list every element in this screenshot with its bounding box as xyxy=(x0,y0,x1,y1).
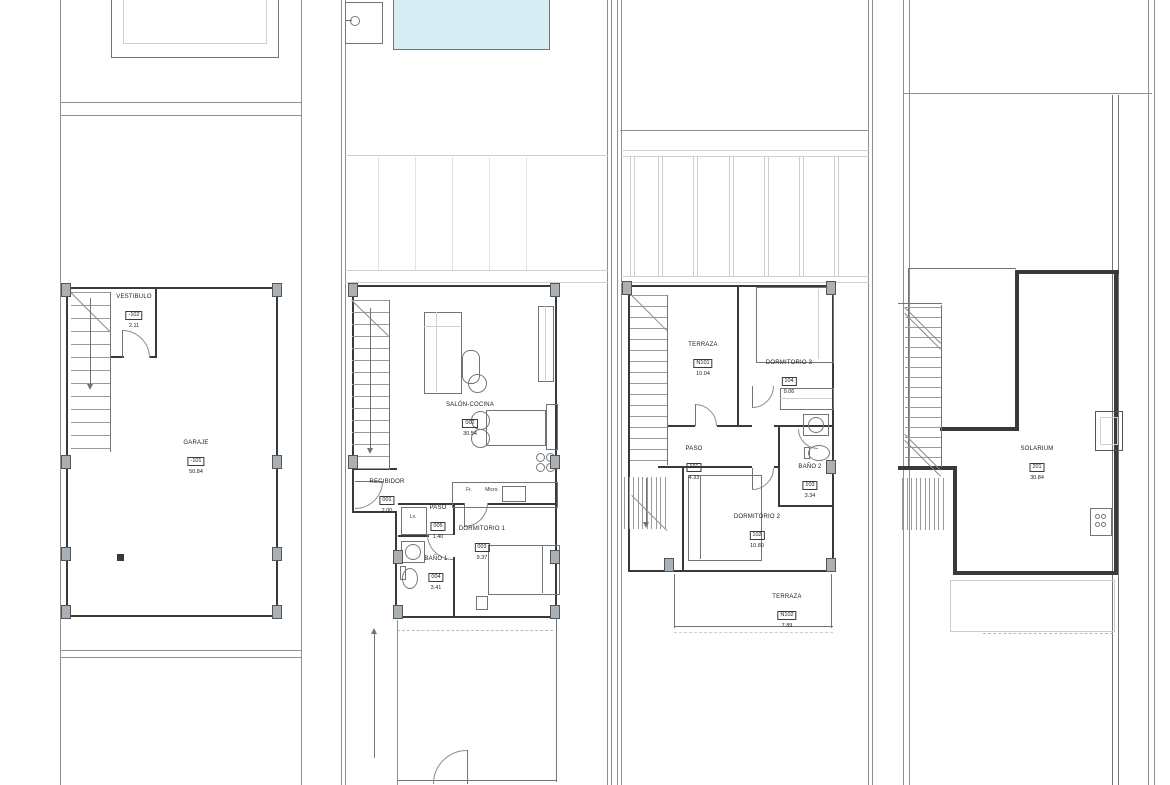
room-area: 3.41 xyxy=(424,585,447,592)
wall xyxy=(66,287,278,289)
room-name: GARAJE xyxy=(183,440,208,448)
lower-roof-outline xyxy=(950,580,1115,632)
room-name: TERRAZA xyxy=(688,342,717,350)
stair-tread xyxy=(905,357,941,358)
pergola-slat xyxy=(634,157,635,277)
room-code: 004 xyxy=(428,573,443,583)
direction-arrow-head xyxy=(367,448,373,454)
room-name: RECIBIDOR xyxy=(369,479,404,487)
plot-line xyxy=(607,0,608,785)
hatch-line xyxy=(651,477,652,529)
toilet-tank xyxy=(804,447,810,459)
toilet xyxy=(808,445,830,461)
direction-arrow-head xyxy=(643,522,649,528)
plot-line xyxy=(611,0,612,785)
deck-line xyxy=(489,157,490,270)
plot-line xyxy=(301,0,302,785)
room-area: 9.37 xyxy=(459,555,505,562)
plot-line xyxy=(341,0,342,785)
room-code: 102 xyxy=(749,531,764,541)
wall xyxy=(1015,270,1019,430)
column xyxy=(61,547,71,561)
wall xyxy=(352,285,557,287)
wall xyxy=(155,287,157,358)
stair-tread xyxy=(630,372,667,373)
sink xyxy=(808,417,824,433)
plot-line xyxy=(868,0,869,785)
terrace-wall xyxy=(831,574,832,628)
room-name: TERRAZA xyxy=(772,594,801,602)
room-name: DORMITORIO 3 xyxy=(766,360,812,368)
room-area: 3.34 xyxy=(798,493,821,500)
direction-arrow xyxy=(90,298,91,384)
column xyxy=(826,558,836,572)
plot-line xyxy=(617,0,618,785)
room-code: -101 xyxy=(187,457,204,467)
stair-tread xyxy=(630,416,667,417)
stair-tread xyxy=(630,405,667,406)
stair-tread xyxy=(905,377,941,378)
outdoor-shower-icon xyxy=(350,16,360,26)
outdoor-shower-icon xyxy=(346,20,352,21)
wall xyxy=(658,466,752,468)
wall xyxy=(953,571,1118,575)
room-name: DORMITORIO 2 xyxy=(734,514,780,522)
room-name: SALÓN-COCINA xyxy=(446,402,494,410)
plot-line xyxy=(872,0,873,785)
chimney-box-inner xyxy=(1100,417,1118,445)
direction-arrow xyxy=(374,634,375,758)
stair-wall xyxy=(941,305,942,467)
stair-tread xyxy=(71,422,110,423)
room-code: -102 xyxy=(125,311,142,321)
deck-line xyxy=(452,157,453,270)
column xyxy=(393,550,403,564)
floor-drain xyxy=(117,554,124,561)
room-label: BAÑO 10043.41 xyxy=(424,556,447,592)
wall xyxy=(668,425,695,427)
room-label: DORMITORIO 10039.37 xyxy=(459,526,505,562)
pergola-slat xyxy=(697,157,698,277)
appliance-annotation: Lv. xyxy=(410,514,416,520)
wall xyxy=(778,505,834,507)
wall xyxy=(395,616,557,618)
stair-tread xyxy=(630,438,667,439)
pergola-slat xyxy=(630,157,631,277)
direction-arrow xyxy=(646,478,647,522)
band-line xyxy=(621,150,869,151)
room-label: TERRAZAN10110.04 xyxy=(688,342,717,378)
pergola-slat xyxy=(799,157,800,277)
stair-tread xyxy=(905,307,941,308)
door-arc xyxy=(433,750,467,784)
wall xyxy=(66,615,278,617)
hatch-line xyxy=(656,477,657,529)
column xyxy=(393,605,403,619)
room-area: 10.04 xyxy=(688,371,717,378)
stair-tread xyxy=(71,448,110,449)
pergola-slat xyxy=(693,157,694,277)
plot-line xyxy=(909,0,910,785)
sofa-line xyxy=(424,326,460,327)
pergola-slat xyxy=(768,157,769,277)
pergola-slat xyxy=(658,157,659,277)
column xyxy=(550,283,560,297)
column xyxy=(550,455,560,469)
room-area: 7.89 xyxy=(772,623,801,630)
stair-tread xyxy=(630,449,667,450)
roof-edge xyxy=(898,303,942,304)
bed xyxy=(756,287,834,363)
column xyxy=(348,283,358,297)
room-code: 003 xyxy=(474,543,489,553)
stair-tread xyxy=(905,437,941,438)
pergola-slat xyxy=(733,157,734,277)
plot-line xyxy=(345,0,346,785)
stair-tread xyxy=(71,435,110,436)
stair-tread xyxy=(630,306,667,307)
pool xyxy=(393,0,550,50)
room-code: 001 xyxy=(379,496,394,506)
hob-burner xyxy=(536,463,545,472)
tv-unit xyxy=(538,306,554,382)
stair-tread xyxy=(630,361,667,362)
stair-tread xyxy=(630,427,667,428)
room-area: 2.00 xyxy=(369,508,404,515)
hatch-line xyxy=(916,478,917,530)
hatch-line xyxy=(660,477,661,529)
closet-line xyxy=(780,398,832,399)
stair-tread xyxy=(905,387,941,388)
band-line xyxy=(60,115,302,116)
ac-dot xyxy=(1095,514,1100,519)
dining-table xyxy=(486,410,546,446)
appliance-annotation: Micro. xyxy=(485,487,499,493)
hatch-line xyxy=(920,478,921,530)
pergola-slat xyxy=(838,157,839,277)
wall xyxy=(352,285,354,513)
hatch-line xyxy=(934,478,935,530)
stair-tread xyxy=(630,394,667,395)
room-label: RECIBIDOR0012.00 xyxy=(369,479,404,515)
room-area: 1.40 xyxy=(429,534,446,541)
kitchen-sink xyxy=(502,486,526,502)
stair-tread xyxy=(71,396,110,397)
room-area: 30.84 xyxy=(1021,475,1054,482)
column xyxy=(622,281,632,295)
sofa xyxy=(424,312,462,394)
band-line xyxy=(345,282,608,283)
floor-plans-canvas: VESTIBULO-1022.11GARAJE-10150.84SALÓN-CO… xyxy=(0,0,1170,785)
plot-line xyxy=(60,0,61,785)
column xyxy=(272,283,282,297)
stair-tread xyxy=(630,328,667,329)
room-label: SOLARIUM20130.84 xyxy=(1021,446,1054,482)
plot-line xyxy=(621,0,622,785)
band-line xyxy=(903,93,1152,94)
column xyxy=(826,460,836,474)
column xyxy=(272,455,282,469)
hatch-line xyxy=(638,477,639,529)
room-label: BAÑO 21033.34 xyxy=(798,464,821,500)
deck-line xyxy=(526,157,527,270)
stair-tread xyxy=(71,292,110,293)
column xyxy=(272,547,282,561)
door-arc-curve xyxy=(695,404,717,426)
dashed-line xyxy=(397,630,553,631)
room-area: 9.06 xyxy=(766,389,812,396)
direction-arrow-head xyxy=(87,384,93,390)
column xyxy=(550,550,560,564)
room-label: GARAJE-10150.84 xyxy=(183,440,208,476)
hatch-line xyxy=(907,478,908,530)
band-line xyxy=(60,102,302,103)
hatch-line xyxy=(902,478,903,530)
room-name: BAÑO 2 xyxy=(798,464,821,472)
room-area: 2.11 xyxy=(116,323,151,330)
pergola-slat xyxy=(764,157,765,277)
room-area: 50.84 xyxy=(183,469,208,476)
hatch-line xyxy=(925,478,926,530)
stair-tread xyxy=(352,300,389,301)
hatch-line xyxy=(665,477,666,529)
stair-tread xyxy=(71,409,110,410)
hatch-line xyxy=(633,477,634,529)
plot-line xyxy=(397,620,398,785)
hatch-line xyxy=(938,478,939,530)
room-area: 30.54 xyxy=(446,431,494,438)
wall xyxy=(150,356,157,358)
sofa-line xyxy=(436,312,437,392)
door-arc xyxy=(695,404,717,426)
hatch-line xyxy=(629,477,630,529)
patio-outline-inner xyxy=(123,0,267,44)
wall xyxy=(940,427,1019,431)
pergola-slat xyxy=(662,157,663,277)
room-label: DORMITORIO 210210.80 xyxy=(734,514,780,550)
stair-tread xyxy=(630,350,667,351)
appliance-annotation: Fr. xyxy=(466,487,472,493)
wall xyxy=(453,557,455,618)
nightstand xyxy=(476,596,488,610)
pergola-slat xyxy=(834,157,835,277)
stair-tread xyxy=(905,427,941,428)
band-line xyxy=(60,657,302,658)
room-name: DORMITORIO 1 xyxy=(459,526,505,534)
column xyxy=(272,605,282,619)
stair-diagonal xyxy=(631,295,667,331)
wall xyxy=(774,466,780,468)
wall xyxy=(276,287,278,617)
terrace-wall xyxy=(674,574,675,628)
counter xyxy=(546,404,558,450)
wall xyxy=(66,287,68,617)
direction-arrow xyxy=(370,308,371,448)
ac-dot xyxy=(1095,522,1100,527)
door-arc-curve xyxy=(122,330,150,358)
side-table xyxy=(468,374,487,393)
dashed-line xyxy=(674,632,833,633)
plot-line xyxy=(1154,0,1155,785)
stair-wall xyxy=(389,300,390,470)
room-name: SOLARIUM xyxy=(1021,446,1054,454)
room-code: 104 xyxy=(781,377,796,387)
bed-line xyxy=(700,475,701,559)
wall-line xyxy=(397,780,557,781)
dashed-line xyxy=(983,633,1113,634)
room-label: TERRAZAN1027.89 xyxy=(772,594,801,630)
room-code: 101 xyxy=(686,463,701,473)
room-label: DORMITORIO 31049.06 xyxy=(766,360,812,396)
stair-tread xyxy=(630,383,667,384)
column xyxy=(550,605,560,619)
wall xyxy=(682,466,684,572)
column xyxy=(61,455,71,469)
band-line xyxy=(60,650,302,651)
roof-edge xyxy=(908,268,1016,269)
room-code: N101 xyxy=(693,359,712,369)
ac-dot xyxy=(1101,522,1106,527)
room-code: N102 xyxy=(777,611,796,621)
wall xyxy=(738,425,752,427)
stair-tread xyxy=(905,407,941,408)
sink xyxy=(405,544,421,560)
washer xyxy=(401,507,427,535)
wall-line xyxy=(556,618,557,782)
room-label: SALÓN-COCINA00230.54 xyxy=(446,402,494,438)
room-code: 103 xyxy=(802,481,817,491)
band-line xyxy=(620,130,869,131)
room-name: BAÑO 1 xyxy=(424,556,447,564)
stair-wall xyxy=(110,292,111,452)
terrace-wall xyxy=(674,626,833,627)
band-line xyxy=(345,155,608,156)
hatch-line xyxy=(911,478,912,530)
column xyxy=(348,455,358,469)
wall xyxy=(1015,270,1119,274)
hatch-line xyxy=(943,478,944,530)
wall xyxy=(398,535,429,537)
stair-tread xyxy=(630,317,667,318)
room-name: PASO xyxy=(685,446,702,454)
deck-line xyxy=(378,157,379,270)
direction-arrow-head xyxy=(371,628,377,634)
deck-line xyxy=(415,157,416,270)
stair-tread xyxy=(905,397,941,398)
room-code: 201 xyxy=(1029,463,1044,473)
wall xyxy=(628,570,834,572)
door-arc-curve xyxy=(433,750,467,784)
tv-unit-line xyxy=(545,306,546,380)
wall xyxy=(395,511,397,618)
column xyxy=(826,281,836,295)
stair-wall xyxy=(667,295,668,465)
room-area: 4.33 xyxy=(685,475,702,482)
ac-dot xyxy=(1101,514,1106,519)
pergola-slat xyxy=(803,157,804,277)
plot-line xyxy=(903,0,904,785)
band-line xyxy=(345,270,608,271)
room-label: PASO1014.33 xyxy=(685,446,702,482)
room-label: VESTIBULO-1022.11 xyxy=(116,294,151,330)
room-code: 002 xyxy=(462,419,477,429)
pergola-slat xyxy=(729,157,730,277)
column xyxy=(61,283,71,297)
wall xyxy=(953,466,957,575)
room-code: 005 xyxy=(430,522,445,532)
plot-line xyxy=(1148,0,1149,785)
room-name: VESTIBULO xyxy=(116,294,151,302)
hatch-line xyxy=(624,477,625,529)
column xyxy=(61,605,71,619)
wall xyxy=(898,466,955,470)
stair-tread xyxy=(630,339,667,340)
stair-tread xyxy=(905,347,941,348)
door-arc xyxy=(122,330,150,358)
column xyxy=(664,558,674,572)
hob-burner xyxy=(536,453,545,462)
stair-tread xyxy=(630,295,667,296)
bed-line xyxy=(818,289,819,359)
stair-tread xyxy=(905,417,941,418)
door-leaf xyxy=(467,750,468,784)
wall xyxy=(717,425,739,427)
toilet-tank xyxy=(400,566,406,580)
room-label: PASO0051.40 xyxy=(429,505,446,541)
stair-tread xyxy=(630,460,667,461)
wall xyxy=(737,287,739,427)
hatch-line xyxy=(929,478,930,530)
bed-line xyxy=(542,545,543,593)
room-area: 10.80 xyxy=(734,543,780,550)
room-name: PASO xyxy=(429,505,446,513)
stair-tread xyxy=(905,367,941,368)
